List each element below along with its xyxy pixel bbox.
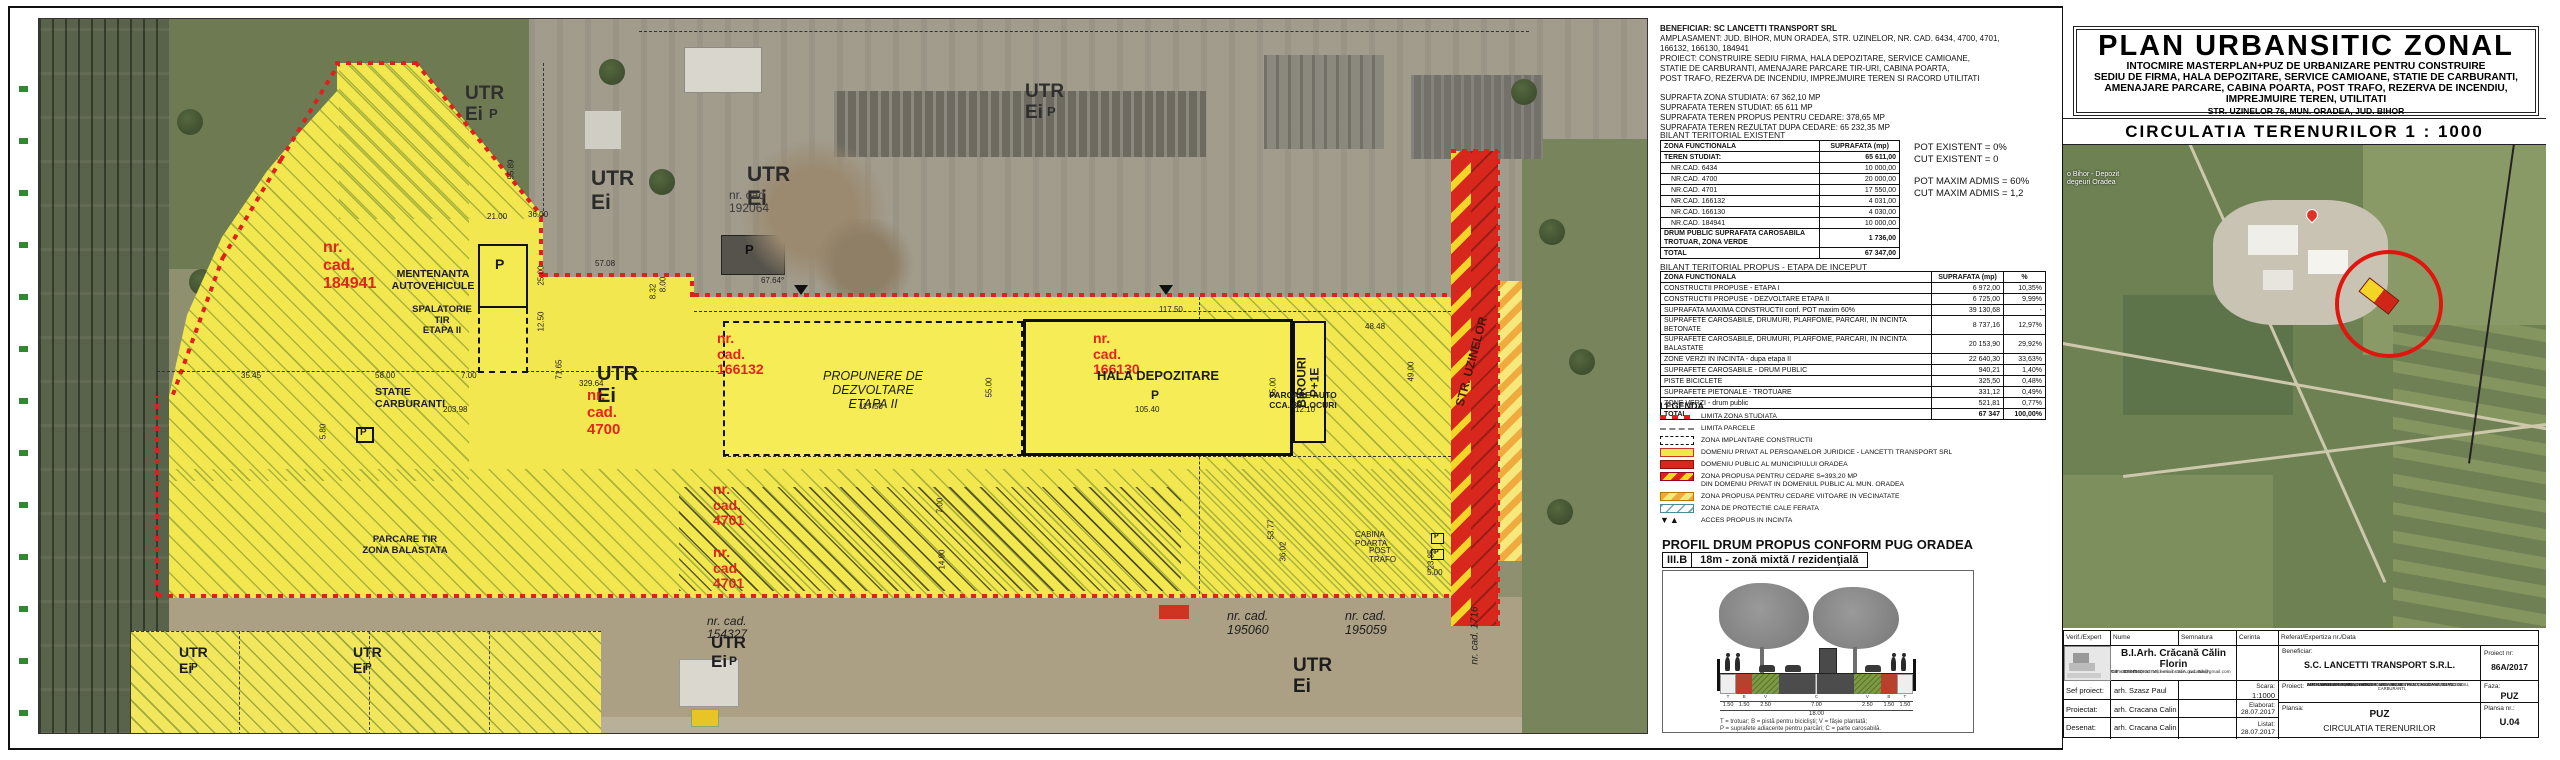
label-p-1: P [489,107,498,122]
faza-label: Faza: [2484,683,2500,690]
legend-item-label: ZONA IMPLANTARE CONSTRUCTII [1701,436,1813,445]
info-line: AMPLASAMENT: JUD. BIHOR, MUN ORADEA, STR… [1660,34,2045,44]
segment-B [1881,674,1897,694]
tb-header: Nume [2113,634,2130,641]
role-label: Proiectat: [2066,705,2098,714]
label-p-mentenanta: P [495,257,504,273]
elaborat-label: Elaborat: [2249,702,2275,709]
dimension-label: 8.00 [658,277,667,293]
signature-cell [2179,681,2237,700]
access-triangle-icon [794,285,808,295]
profile-class-desc: 18m - zonă mixtă / rezidenţială [1692,552,1867,568]
plansa-value-2: CIRCULATIA TERENURILOR [2279,723,2480,733]
info-line: 166132, 166130, 184941 [1660,44,2045,54]
location-overview-map: o Bihor - Depozit degeuri Oradea [2063,145,2546,628]
person-icon [1735,657,1740,671]
scara-label: Scara: [2256,683,2275,690]
tree-icon [1813,587,1899,649]
tree [599,59,625,85]
label-nr-cad-4701-b: nr. cad. 4701 [713,545,744,592]
architect-logo [2064,646,2111,681]
aerial-building [1264,55,1384,149]
railway-symbol-line [19,40,28,716]
dimension-label: 23.85 [1427,549,1436,569]
legend-item-label: DOMENIU PRIVAT AL PERSOANELOR JURIDICE -… [1701,448,1952,457]
tree [649,169,675,195]
dimension-label: 36.02 [1279,541,1288,561]
legend-item-label: ACCES PROPUS IN INCINTA [1701,516,1792,525]
building-spalatorie [478,308,528,373]
legend-item: LIMITA PARCELE [1660,424,2050,433]
note-line [1914,166,2059,176]
label-p-statie: P [360,427,367,438]
limita-studiata-swatch [1660,415,1694,419]
sheet-subtitle: IMPREJMUIRE TEREN, UTILITATI [2077,94,2535,105]
column-header: % [2004,272,2046,283]
parcel-divider [489,631,490,734]
bilant-existent-table: ZONA FUNCTIONALASUPRAFATA (mp)TEREN STUD… [1660,140,1900,259]
label-p-2: P [1047,105,1056,120]
dimension-label: 36.00 [528,210,548,219]
dimension-label: 57.08 [595,259,615,268]
scara-value: 1:1000 [2252,691,2275,700]
role-name: arh. Cracana Calin [2114,705,2177,714]
label-utr-ei-2: UTR Ei [591,167,634,214]
profile-wall [1913,659,1916,691]
limita-parcele [543,63,544,216]
segment-C [1779,674,1854,694]
label-statie-carburanti: STATIE CARBURANTI [375,387,445,411]
legend-item: ZONA IMPLANTARE CONSTRUCTII [1660,436,2050,445]
table-cell: CONSTRUCTII PROPUSE - DEZVOLTARE ETAPA I… [1661,294,1932,305]
segment-T [1720,674,1736,694]
label-p-5: P [365,662,372,673]
note-line: CUT MAXIM ADMIS = 1,2 [1914,188,2059,200]
dimension-label: 49.00 [1407,361,1416,381]
signature-cell [2179,718,2237,739]
acces-swatch: ▼▲ [1660,516,1694,525]
dimension-label: 55.00 [985,377,994,397]
segment-T [1897,674,1913,694]
table-cell: TOTAL [1661,248,1820,259]
table-cell: 9,99% [2004,294,2046,305]
map-building [2263,270,2293,290]
road-profile-drawing: TBVCVBT 1.501.502.507.002.501.501.50 18.… [1662,570,1974,733]
access-triangle-icon [1159,285,1173,295]
aerial-building [684,47,762,93]
road-cross-section [1720,673,1913,694]
profile-class-code: III.B [1662,552,1692,568]
segment-V [1854,674,1881,694]
segment-letters: TBVCVBT [1720,694,1913,699]
dimension-label: 7.00 [461,371,477,380]
limita-parcele [639,31,1529,32]
limita-zona-studiata [543,273,694,277]
table-cell: 0,77% [2004,398,2046,409]
aerial-building-yellow [691,709,719,727]
title-box: PLAN URBANSITIC ZONAL INTOCMIRE MASTERPL… [2073,26,2539,116]
table-cell: 0,49% [2004,387,2046,398]
dimension-label: 21.00 [487,212,507,221]
label-parcare-tir: PARCARE TIR ZONA BALASTATA [347,535,463,556]
table-cell: CONSTRUCTII PROPUSE - ETAPA I [1661,283,1932,294]
person-icon [1901,657,1906,671]
dimension-label: 14.90 [938,549,947,569]
dimension-label: 55.89 [507,159,516,179]
table-cell: SUPRAFETE CAROSABILE, DRUMURI, PLARFOME,… [1661,316,1932,335]
table-cell: NR.CAD. 4701 [1661,185,1820,196]
tb-header: Verif./Expert [2066,634,2101,641]
legend-item: ZONA PROPUSA PENTRU CEDARE VIITOARE IN V… [1660,492,2050,501]
profile-legend-2: P = suprafete adiacente pentru parcări; … [1720,726,1881,734]
map-building [2248,225,2298,255]
limita-zona-studiata [157,594,1451,598]
table-cell: NR.CAD. 6434 [1661,163,1820,174]
dimension-label: 12.10 [1295,405,1315,414]
segment-V [1752,674,1779,694]
limita-zona-studiata [1451,149,1498,153]
person-icon [1725,657,1730,671]
bilant-existent-title: BILANT TERITORIAL EXISTENT [1660,130,1785,140]
column-header: SUPRAFATA (mp) [1820,141,1900,152]
table-cell: 6 972,00 [1932,283,2004,294]
tree [1511,79,1537,105]
proiect-text-line: STR. UZINELOR 76, MUN. ORADEA, JUD. BIHO… [2307,683,2403,687]
zona-implantare-swatch [1660,436,1694,445]
aerial-building-red [1159,605,1189,619]
map-field-stripes [2393,325,2546,628]
table-cell: ZONE VERZI IN INCINTA - dupa etapa II [1661,354,1932,365]
table-cell: 29,92% [2004,335,2046,354]
info-line: SUPRAFATA TEREN STUDIAT: 65 611 MP [1660,103,2045,113]
table-cell: 65 611,00 [1820,152,1900,163]
tb-header: Semnatura [2181,634,2213,641]
legend-item: DOMENIU PRIVAT AL PERSOANELOR JURIDICE -… [1660,448,2050,457]
segment-B [1736,674,1752,694]
table-cell: 39 130,68 [1932,305,2004,316]
role-name: arh. Cracana Calin [2114,723,2177,732]
table-cell: SUPRAFETE CAROSABILE - DRUM PUBLIC [1661,365,1932,376]
tree [1547,499,1573,525]
table-cell: 521,81 [1932,398,2004,409]
domeniu-privat-swatch [1660,448,1694,457]
legend-item: ▼▲ACCES PROPUS IN INCINTA [1660,516,2050,525]
title-column: PLAN URBANSITIC ZONAL INTOCMIRE MASTERPL… [2062,6,2552,750]
dimension-label: 117.50 [859,402,883,411]
tree [177,109,203,135]
label-utr-ei-4: UTR Ei [1025,81,1064,124]
label-nr-cad-195060: nr. cad. 195060 [1227,609,1269,637]
limita-zona-studiata [155,396,159,596]
tb-header: Referat/Expertiza nr./Data [2281,634,2356,641]
total-width: 18.00 [1720,710,1913,717]
cedare-hatch [1471,151,1498,626]
site-plan-map: UTR EiPUTR EiUTR Einr. cad 192064UTR EiP… [38,18,1648,734]
dimension-label: 203.98 [443,405,467,414]
label-nr-cad-166132: nr. cad. 166132 [717,331,764,378]
parcel-divider [239,631,240,734]
label-hala-depozitare: HALA DEPOZITARE [1083,369,1233,384]
table-cell: 4 030,00 [1820,207,1900,218]
legend-item-label: DOMENIU PUBLIC AL MUNICIPIULUI ORADEA [1701,460,1848,469]
map-poi-label: o Bihor - Depozit degeuri Oradea [2067,171,2119,187]
dimension-label: 58.00 [375,371,395,380]
table-cell: 331,12 [1932,387,2004,398]
label-nr-cad-184941: nr. cad. 184941 [323,239,376,293]
table-cell: NR.CAD. 166130 [1661,207,1820,218]
label-post-trafo: POST TRAFO [1369,547,1396,565]
table-cell: NR.CAD. 4700 [1661,174,1820,185]
dimension-label: 67.64° [761,276,784,285]
label-p-cabina: P [1434,533,1439,541]
listat-label: Listat: [2258,721,2275,728]
profile-title: PROFIL DRUM PROPUS CONFORM PUG ORADEA [1662,537,1973,552]
label-nr-cad-4700: nr. cad. 4700 [587,388,620,438]
cerinta-cell [2237,646,2279,681]
table-cell: 6 725,00 [1932,294,2004,305]
info-line [1660,84,2045,93]
limita-zona-studiata [1496,151,1500,626]
plan-sheet: UTR EiPUTR EiUTR Einr. cad 192064UTR EiP… [0,0,2560,760]
building-mentenanta [478,244,528,308]
proiect-nr-label: Proiect nr: [2484,650,2514,657]
table-cell: SUPRAFATA MAXIMA CONSTRUCTII conf. POT m… [1661,305,1932,316]
hatch-tir-parking [679,487,1181,591]
zona-cedare-viitoare-swatch [1660,492,1694,501]
listat-value: 28.07.2017 [2241,729,2275,736]
dimension-label: 7.00 [935,498,944,514]
table-cell: 1 736,00 [1820,229,1900,248]
label-spalatorie: SPALATORIE TIR ETAPA II [411,305,473,337]
sheet-subtitle: SEDIU DE FIRMA, HALA DEPOZITARE, SERVICE… [2077,72,2535,83]
limita-parcele [694,311,1451,312]
dimension-label: 12.50 [537,311,546,331]
truck-icon [1819,648,1837,674]
legend-title: LEGENDA [1660,401,1704,411]
legend-item-label: LIMITA ZONA STUDIATA [1701,412,1777,421]
legend-item: LIMITA ZONA STUDIATA [1660,412,2050,421]
tree [1539,219,1565,245]
table-cell: SUPRAFETE PIETONALE - TROTUARE [1661,387,1932,398]
table-cell: 22 640,30 [1932,354,2004,365]
zona-cedare-swatch [1660,472,1694,481]
dimension-label: 53.77 [1267,519,1276,539]
table-cell: 17 550,00 [1820,185,1900,196]
bilant-propus-table: ZONA FUNCTIONALASUPRAFATA (mp)%CONSTRUCT… [1660,271,2046,420]
table-cell: 8 737,16 [1932,316,2004,335]
dimension-label: 5.80 [318,424,327,440]
label-p-3: P [729,655,737,668]
label-nr-cad-1716: nr. cad. 1716 [1469,585,1480,665]
table-cell: - [2004,305,2046,316]
dimension-label: 5.00 [1427,568,1443,577]
plansa-value-1: PUZ [2279,709,2480,720]
table-cell: SUPRAFETE CAROSABILE, DRUMURI, PLARFOME,… [1661,335,1932,354]
label-nr-cad-192064: nr. cad 192064 [729,189,769,216]
table-cell: PISTE BICICLETE [1661,376,1932,387]
note-line: POT EXISTENT = 0% [1914,142,2059,154]
label-nr-cad-195059: nr. cad. 195059 [1345,609,1387,637]
limita-parcele-swatch [1660,428,1694,430]
beneficiar-value: S.C. LANCETTI TRANSPORT S.R.L. [2279,660,2480,670]
proiect-label: Proiect: [2282,683,2304,690]
title-block: Verif./Expert Nume Semnatura Cerinta Ref… [2063,630,2539,738]
info-line: SUPRAFATA TEREN PROPUS PENTRU CEDARE: 37… [1660,113,2045,123]
table-cell: 67 347,00 [1820,248,1900,259]
zone-cedare-viitoare [1498,281,1522,561]
legend-item-label: ZONA DE PROTECTIE CALE FERATA [1701,504,1819,513]
table-cell: TEREN STUDIAT: [1661,152,1820,163]
profile-class-row: III.B 18m - zonă mixtă / rezidenţială [1662,552,1868,568]
table-cell: 4 031,00 [1820,196,1900,207]
label-mentenanta: MENTENANTA AUTOVEHICULE [387,269,479,293]
dimension-label: 117.50 [1159,305,1183,314]
proiect-nr-value: 86A/2017 [2481,662,2538,672]
info-line: PROIECT: CONSTRUIRE SEDIU FIRMA, HALA DE… [1660,54,2045,64]
dimension-label: 329.64 [579,379,603,388]
label-nr-cad-4701-a: nr. cad. 4701 [713,482,744,529]
dimension-label: 8.32 [648,284,657,300]
segment-dimensions: 1.501.502.507.002.501.501.50 [1720,701,1913,709]
column-header: SUPRAFATA (mp) [1932,272,2004,283]
data-panel: BENEFICIAR: SC LANCETTI TRANSPORT SRLAMP… [1652,18,2062,734]
aerial-building [834,91,1206,157]
limita-zona-studiata [335,61,419,65]
label-utr-ei-1: UTR Ei [465,83,504,126]
table-cell: DRUM PUBLIC SUPRAFATA CAROSABILA TROTUAR… [1661,229,1820,248]
label-p-hala: P [1151,389,1159,402]
dimension-label: 25.00 [537,265,546,285]
limita-parcele [723,456,1451,457]
legend-item: ZONA DE PROTECTIE CALE FERATA [1660,504,2050,513]
note-line: CUT EXISTENT = 0 [1914,154,2059,166]
table-cell: 1,40% [2004,365,2046,376]
label-p-building: P [745,243,754,258]
sheet-address: STR. UZINELOR 76, MUN. ORADEA, JUD. BIHO… [2077,106,2535,116]
map-building [2308,250,2348,274]
map-field [2063,475,2273,628]
info-line: SUPRAFTA ZONA STUDIATA: 67 362,10 MP [1660,93,2045,103]
table-cell: 325,50 [1932,376,2004,387]
role-label: Sef proiect: [2066,686,2104,695]
label-utr-ei-7: UTR Ei [1293,655,1332,698]
table-cell: 20 153,90 [1932,335,2004,354]
dimension-label: 48.48 [1365,322,1385,331]
info-line: POST TRAFO, REZERVA DE INCENDIU, IMPREJM… [1660,74,2045,84]
pot-cut-notes: POT EXISTENT = 0%CUT EXISTENT = 0POT MAX… [1914,142,2059,200]
car-icon [1785,665,1801,672]
info-line: STATIE DE CARBURANTI, AMENAJARE PARCARE … [1660,64,2045,74]
legend: LIMITA ZONA STUDIATALIMITA PARCELEZONA I… [1660,412,2050,528]
zona-protectie-swatch [1660,504,1694,513]
beneficiar-label: Beneficiar: [2282,648,2313,655]
sheet-subtitle: AMENAJARE PARCARE, CABINA POARTA, POST T… [2077,83,2535,94]
label-p-4: P [191,662,198,673]
table-cell: 20 000,00 [1820,174,1900,185]
table-cell: NR.CAD. 184941 [1661,218,1820,229]
plansa-nr-label: Plansa nr.: [2484,705,2515,712]
dimension-label: 105.40 [1135,405,1159,414]
tree [1569,349,1595,375]
sheet-title: PLAN URBANSITIC ZONAL [2077,31,2535,61]
architect-detail-line: CIF: 31097010 [2111,670,2143,676]
column-header: ZONA FUNCTIONALA [1661,141,1820,152]
table-cell: NR.CAD. 166132 [1661,196,1820,207]
table-cell: 10 000,00 [1820,163,1900,174]
column-header: ZONA FUNCTIONALA [1661,272,1932,283]
dimension-label: 55.00 [1269,377,1278,397]
person-icon [1891,657,1896,671]
note-line: POT MAXIM ADMIS = 60% [1914,176,2059,188]
legend-item: ZONA PROPUSA PENTRU CEDARE S=393,20 MP D… [1660,472,2050,488]
aerial-building [585,111,621,149]
dimension-label: 35.45 [241,371,261,380]
legend-item-label: ZONA PROPUSA PENTRU CEDARE VIITOARE IN V… [1701,492,1900,501]
legend-item-label: ZONA PROPUSA PENTRU CEDARE S=393,20 MP D… [1701,472,1904,488]
table-cell: 10,35% [2004,283,2046,294]
plansa-nr-value: U.04 [2481,717,2538,728]
car-icon [1759,665,1775,672]
legend-item: DOMENIU PUBLIC AL MUNICIPIULUI ORADEA [1660,460,2050,469]
table-cell: 940,21 [1932,365,2004,376]
car-icon [1865,665,1881,672]
tb-header: Cerinta [2239,634,2260,641]
tree-icon [1719,583,1809,649]
info-line: BENEFICIAR: SC LANCETTI TRANSPORT SRL [1660,24,2045,34]
role-name: arh. Szasz Paul [2114,686,2167,695]
legend-item-label: LIMITA PARCELE [1701,424,1755,433]
table-cell: 10 000,00 [1820,218,1900,229]
role-label: Desenat: [2066,723,2096,732]
sheet-subtitle: INTOCMIRE MASTERPLAN+PUZ DE URBANIZARE P… [2077,61,2535,72]
dimension-label: 71.65 [555,359,564,379]
faza-value: PUZ [2481,691,2538,701]
table-cell: 0,48% [2004,376,2046,387]
elaborat-value: 28.07.2017 [2241,709,2275,716]
architect-name: B.I.Arh. Crăcană Călin Florin [2111,648,2236,670]
section-title: CIRCULATIA TERENURILOR 1 : 1000 [2063,118,2546,145]
beneficiary-info: BENEFICIAR: SC LANCETTI TRANSPORT SRLAMP… [1660,24,2045,133]
domeniu-public-swatch [1660,460,1694,469]
table-cell: 12,97% [2004,316,2046,335]
table-cell: 33,63% [2004,354,2046,365]
aerial-railway-strip [39,19,169,734]
signature-cell [2179,700,2237,718]
